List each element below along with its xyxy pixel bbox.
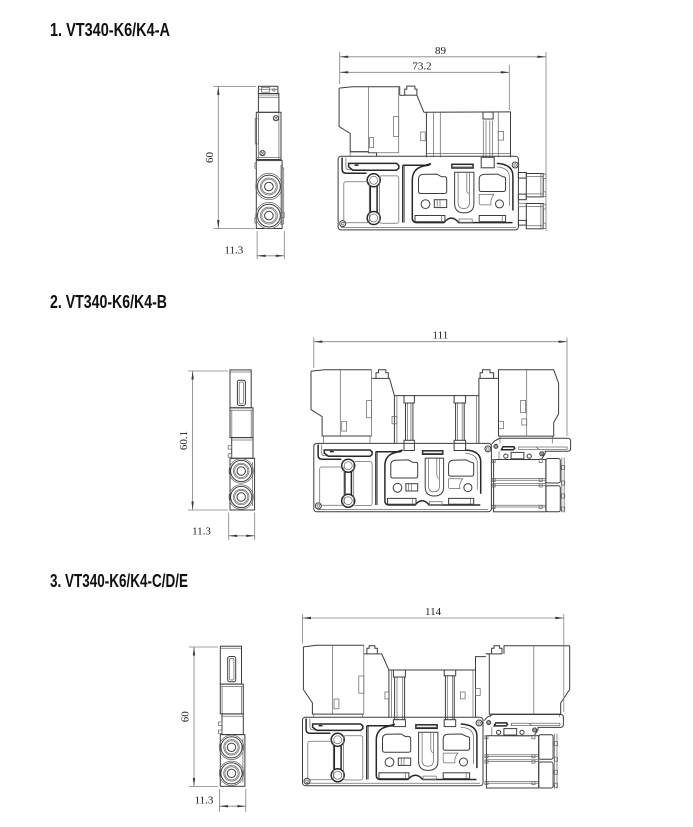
svg-text:60.1: 60.1 <box>178 431 190 450</box>
svg-text:60: 60 <box>180 711 192 723</box>
svg-text:89: 89 <box>435 45 447 57</box>
svg-text:11.3: 11.3 <box>192 525 211 537</box>
svg-text:114: 114 <box>425 606 442 618</box>
svg-text:111: 111 <box>433 330 449 342</box>
svg-text:3. VT340-K6/K4-C/D/E: 3. VT340-K6/K4-C/D/E <box>50 571 188 591</box>
svg-text:1. VT340-K6/K4-A: 1. VT340-K6/K4-A <box>50 20 170 40</box>
svg-text:73.2: 73.2 <box>412 60 431 72</box>
svg-text:11.3: 11.3 <box>224 245 243 257</box>
svg-text:2. VT340-K6/K4-B: 2. VT340-K6/K4-B <box>50 292 167 312</box>
svg-text:11.3: 11.3 <box>195 795 214 807</box>
svg-text:60: 60 <box>204 152 216 164</box>
